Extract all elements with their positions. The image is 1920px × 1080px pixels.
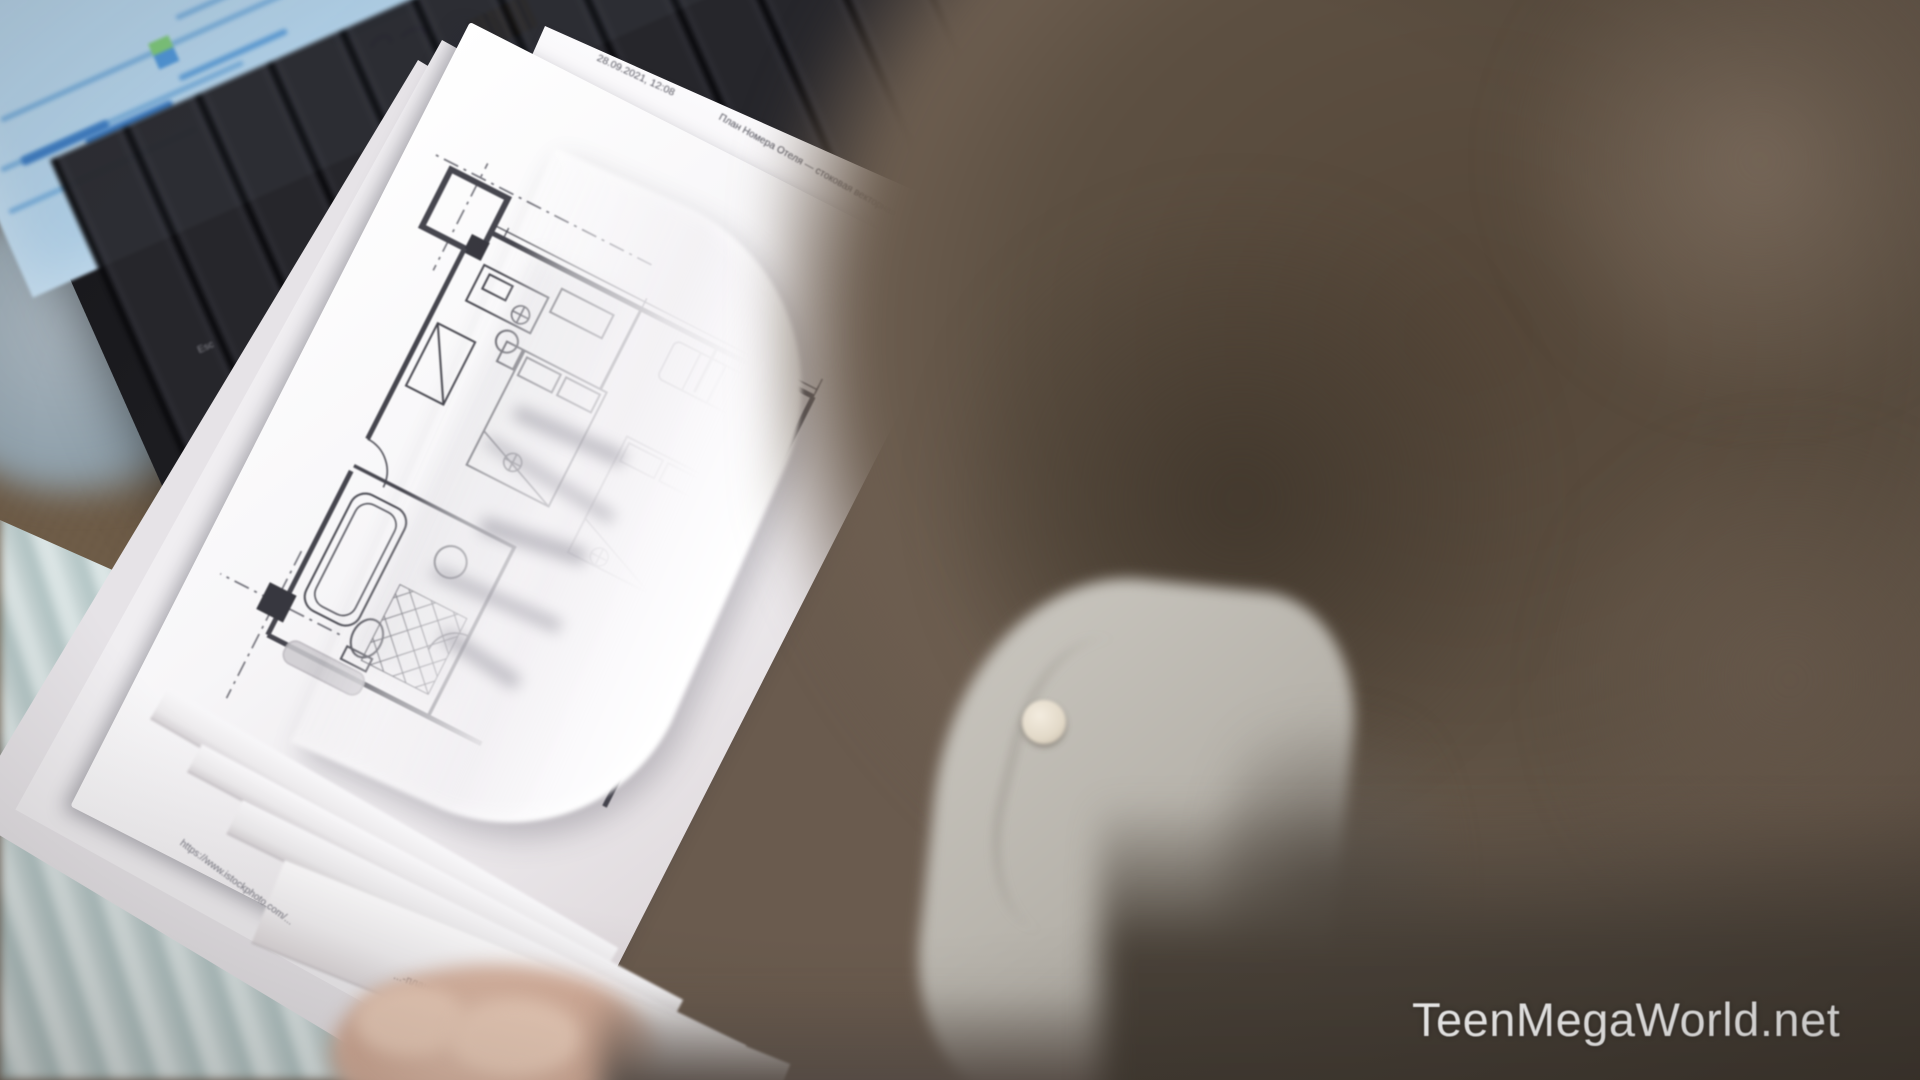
shirt-button — [1022, 700, 1066, 744]
site-watermark: TeenMegaWorld.net — [1412, 992, 1840, 1047]
foreground-shadow — [600, 990, 1160, 1080]
photo-scene: Esc — [0, 0, 1920, 1080]
